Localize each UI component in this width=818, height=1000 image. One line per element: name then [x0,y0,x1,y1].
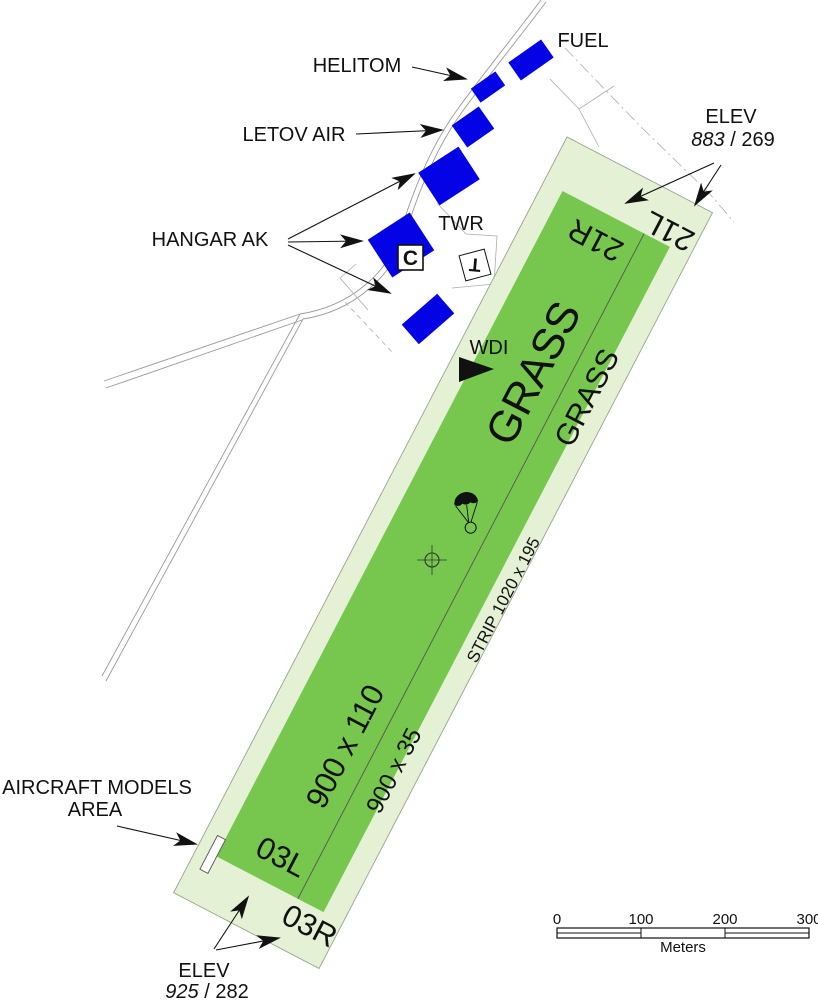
helitom-arrow [412,67,466,79]
fuel-label: FUEL [557,30,608,52]
helitom-building [471,71,505,102]
elev-ne-values: 883 / 269 [691,129,774,151]
runway-strip-group: 21R 21L GRASS GRASS STRIP 1020 x 195 900… [174,137,716,970]
letov-air-label: LETOV AIR [242,124,345,146]
parcel-line-hangar-south [345,302,392,352]
letov-arrow [356,130,442,134]
aerodrome-chart: 21R 21L GRASS GRASS STRIP 1020 x 195 900… [0,0,818,1000]
hangar-code-box: C [398,245,423,270]
parcel-line-fuel-1 [550,79,614,109]
hangar-ak-south-building [402,294,455,344]
tower-symbol-box: T [459,249,491,281]
scale-bar: 0 100 200 300 Meters [553,911,818,956]
fuel-building [508,40,553,81]
helitom-label: HELITOM [313,55,402,77]
scale-tick-300: 300 [796,911,818,928]
elev-sw-feet: 925 [165,981,199,1000]
chart-svg: 21R 21L GRASS GRASS STRIP 1020 x 195 900… [0,0,818,1000]
scale-tick-200: 200 [712,911,737,928]
elev-ne-meters: 269 [741,129,774,151]
twr-label: TWR [438,213,484,235]
elev-sw-values: 925 / 282 [165,981,248,1000]
hangar-code-letter: C [403,247,418,270]
models-area-line1: AIRCRAFT MODELS [2,777,192,799]
letov-air-building [452,106,495,147]
elev-sw-title: ELEV [178,960,230,982]
runway-area [216,191,670,912]
hangar-arrow-south [288,245,390,293]
models-area-line2: AREA [68,799,123,821]
wdi-label: WDI [470,337,509,359]
elev-sw-arrow-right [216,938,279,950]
elev-sw-sep: / [199,981,216,1000]
elev-ne-title: ELEV [705,106,757,128]
elev-ne-arrow-right [695,165,721,205]
road-branch-edge-1 [104,314,300,381]
road-branch-edge-2 [106,320,302,388]
hangar-arrow-center [288,241,362,242]
hangar-ak-label: HANGAR AK [152,229,269,251]
models-area-arrow [117,826,196,844]
scale-tick-0: 0 [553,911,561,928]
scale-unit-label: Meters [660,939,706,956]
scale-tick-100: 100 [628,911,653,928]
elev-ne-sep: / [725,129,742,151]
elev-sw-meters: 282 [215,981,248,1000]
parcel-line-fuel-2 [579,109,599,147]
hangar-ak-north-building [418,147,479,206]
tower-symbol-letter: T [468,253,482,275]
elev-ne-feet: 883 [691,129,724,151]
